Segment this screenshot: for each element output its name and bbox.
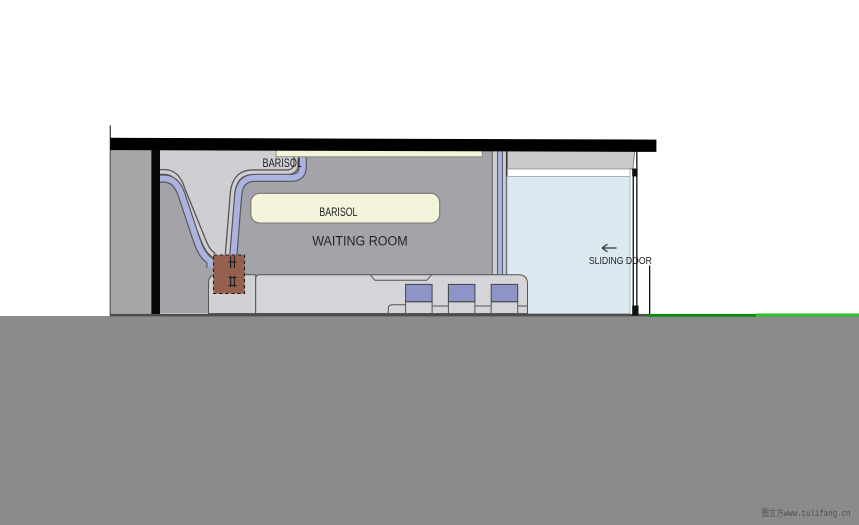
svg-text:BARISOL: BARISOL [319,207,357,219]
svg-text:BARISOL: BARISOL [263,156,303,170]
svg-text:图立方www.tulifang.cn: 图立方www.tulifang.cn [762,507,851,519]
svg-text:WAITING ROOM: WAITING ROOM [312,233,408,249]
svg-text:SLIDING DOOR: SLIDING DOOR [589,256,652,267]
